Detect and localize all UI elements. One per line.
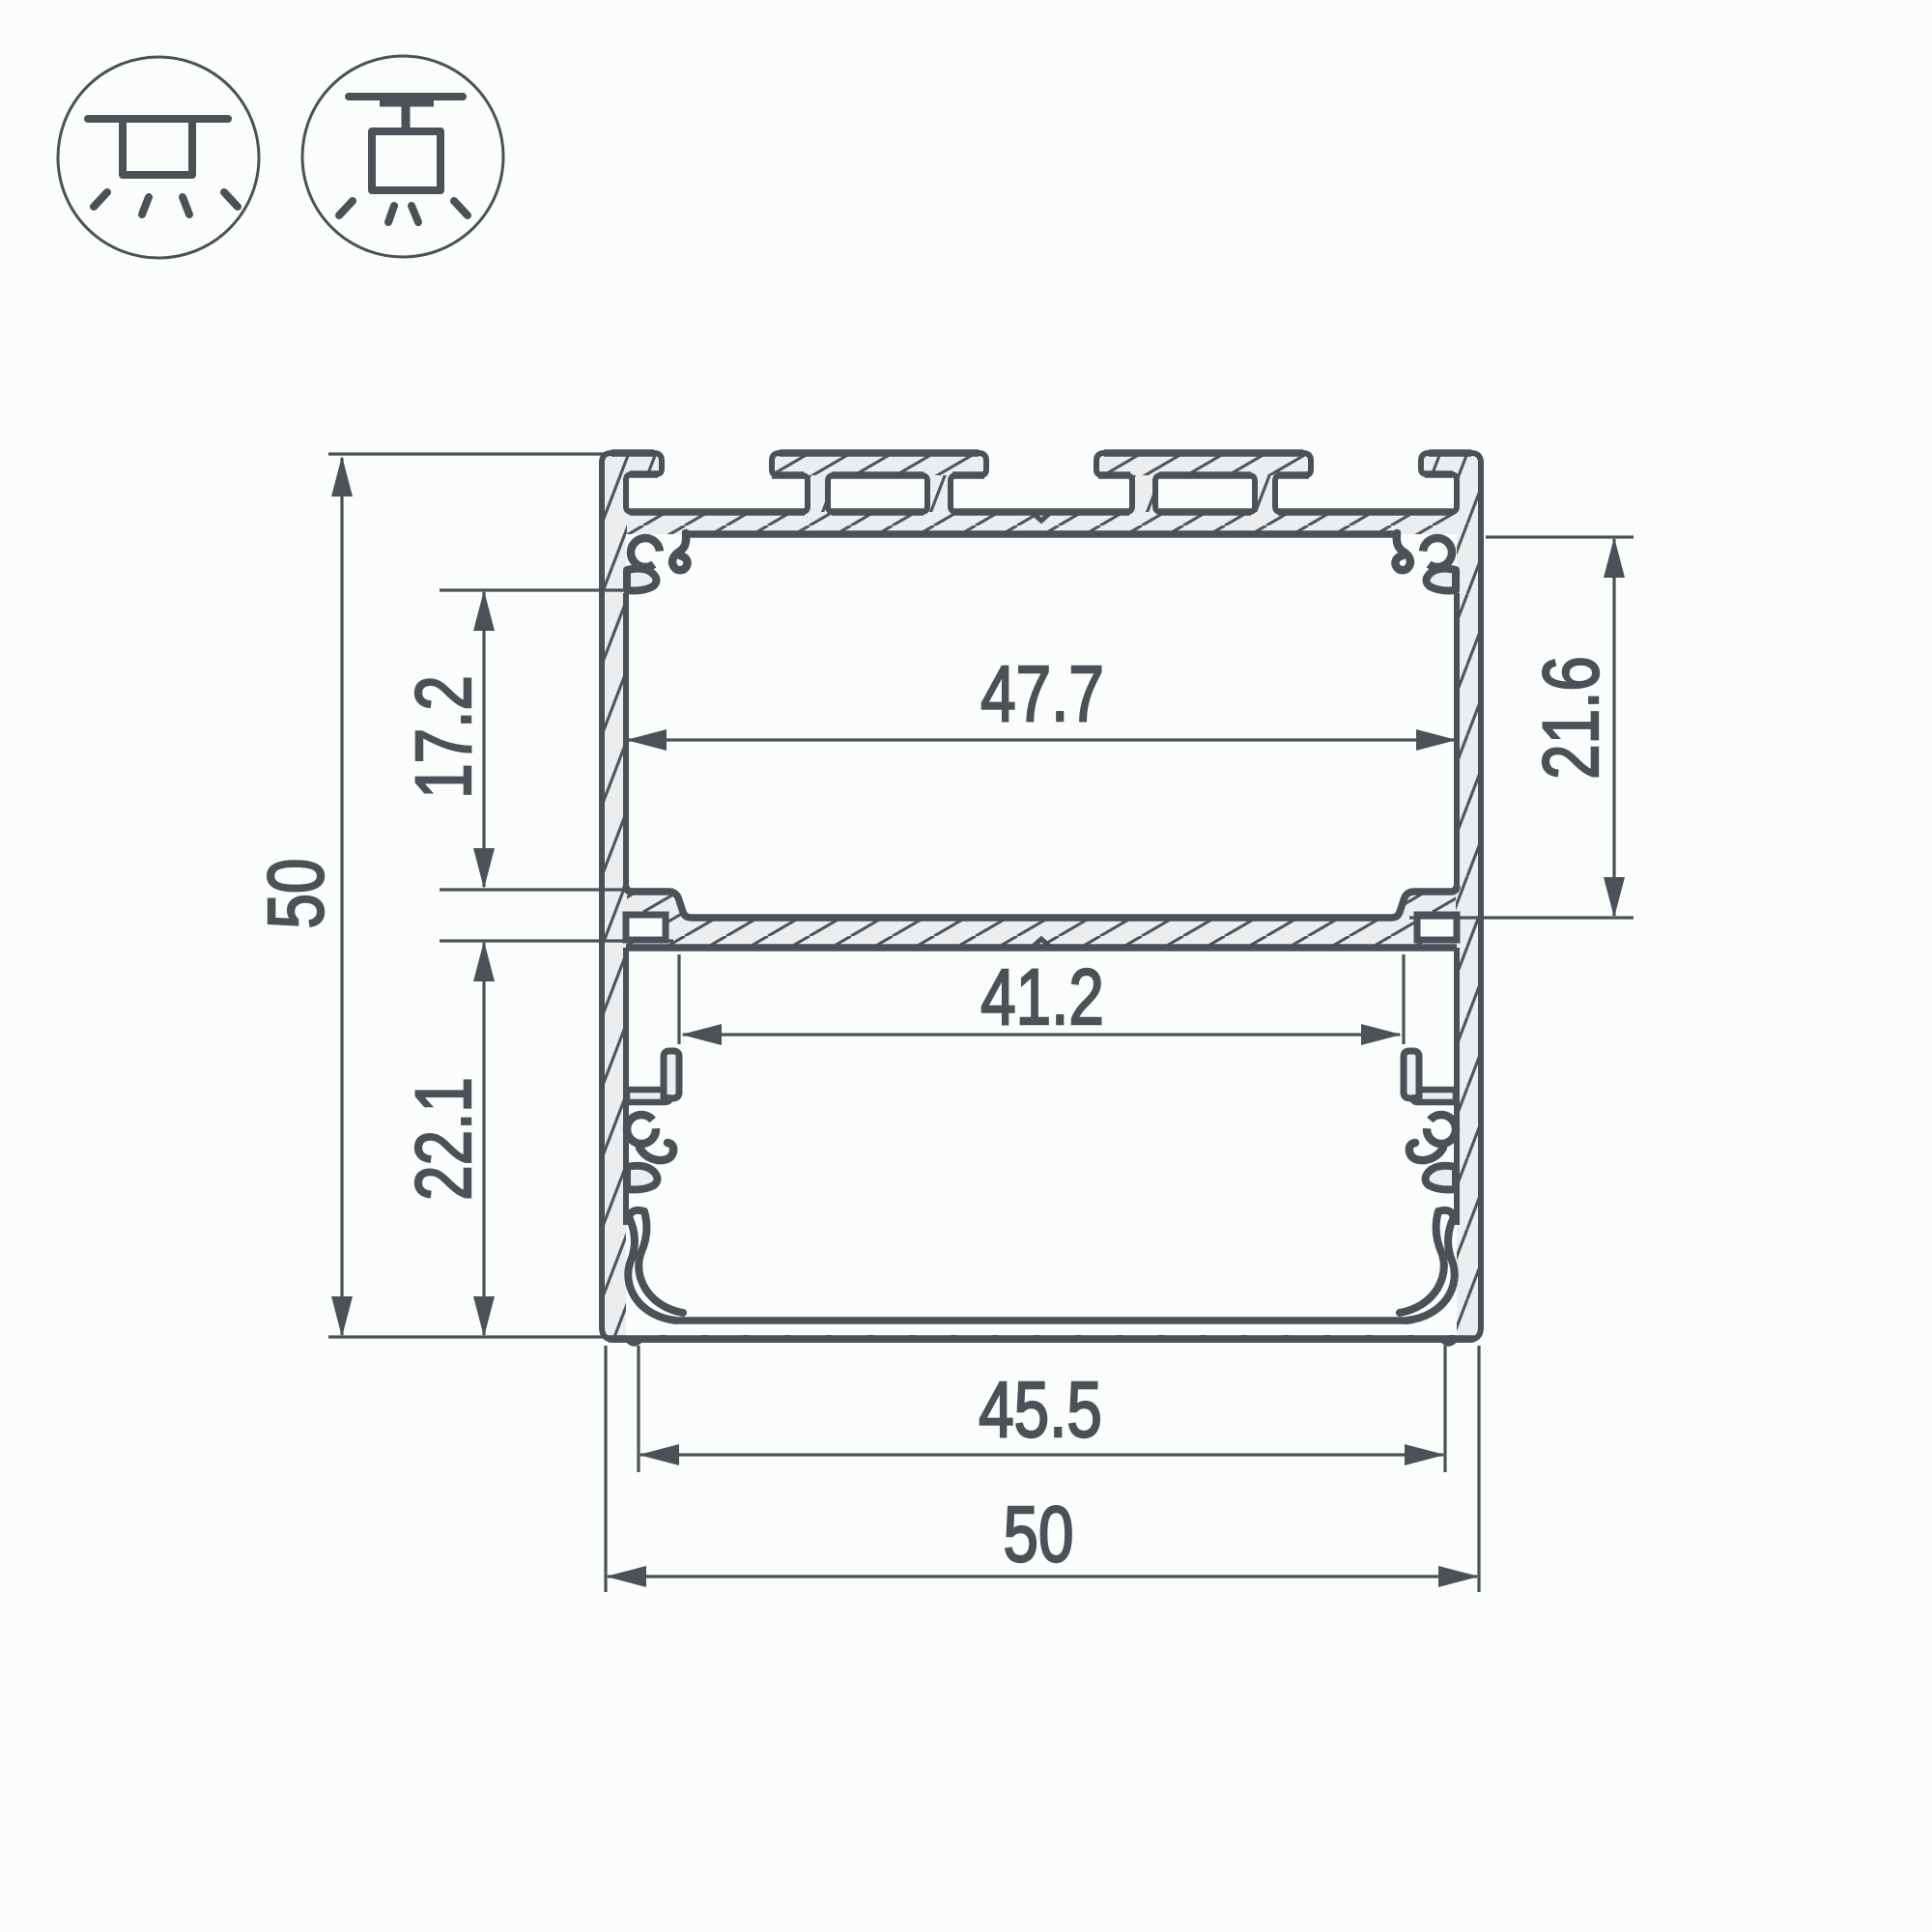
svg-text:17.2: 17.2 <box>399 675 488 799</box>
svg-text:50: 50 <box>251 859 340 929</box>
svg-text:47.7: 47.7 <box>980 649 1104 738</box>
svg-text:21.6: 21.6 <box>1526 656 1615 780</box>
svg-text:22.1: 22.1 <box>399 1077 488 1201</box>
svg-text:50: 50 <box>1004 1490 1074 1578</box>
svg-text:45.5: 45.5 <box>979 1365 1102 1454</box>
svg-text:41.2: 41.2 <box>980 952 1104 1041</box>
